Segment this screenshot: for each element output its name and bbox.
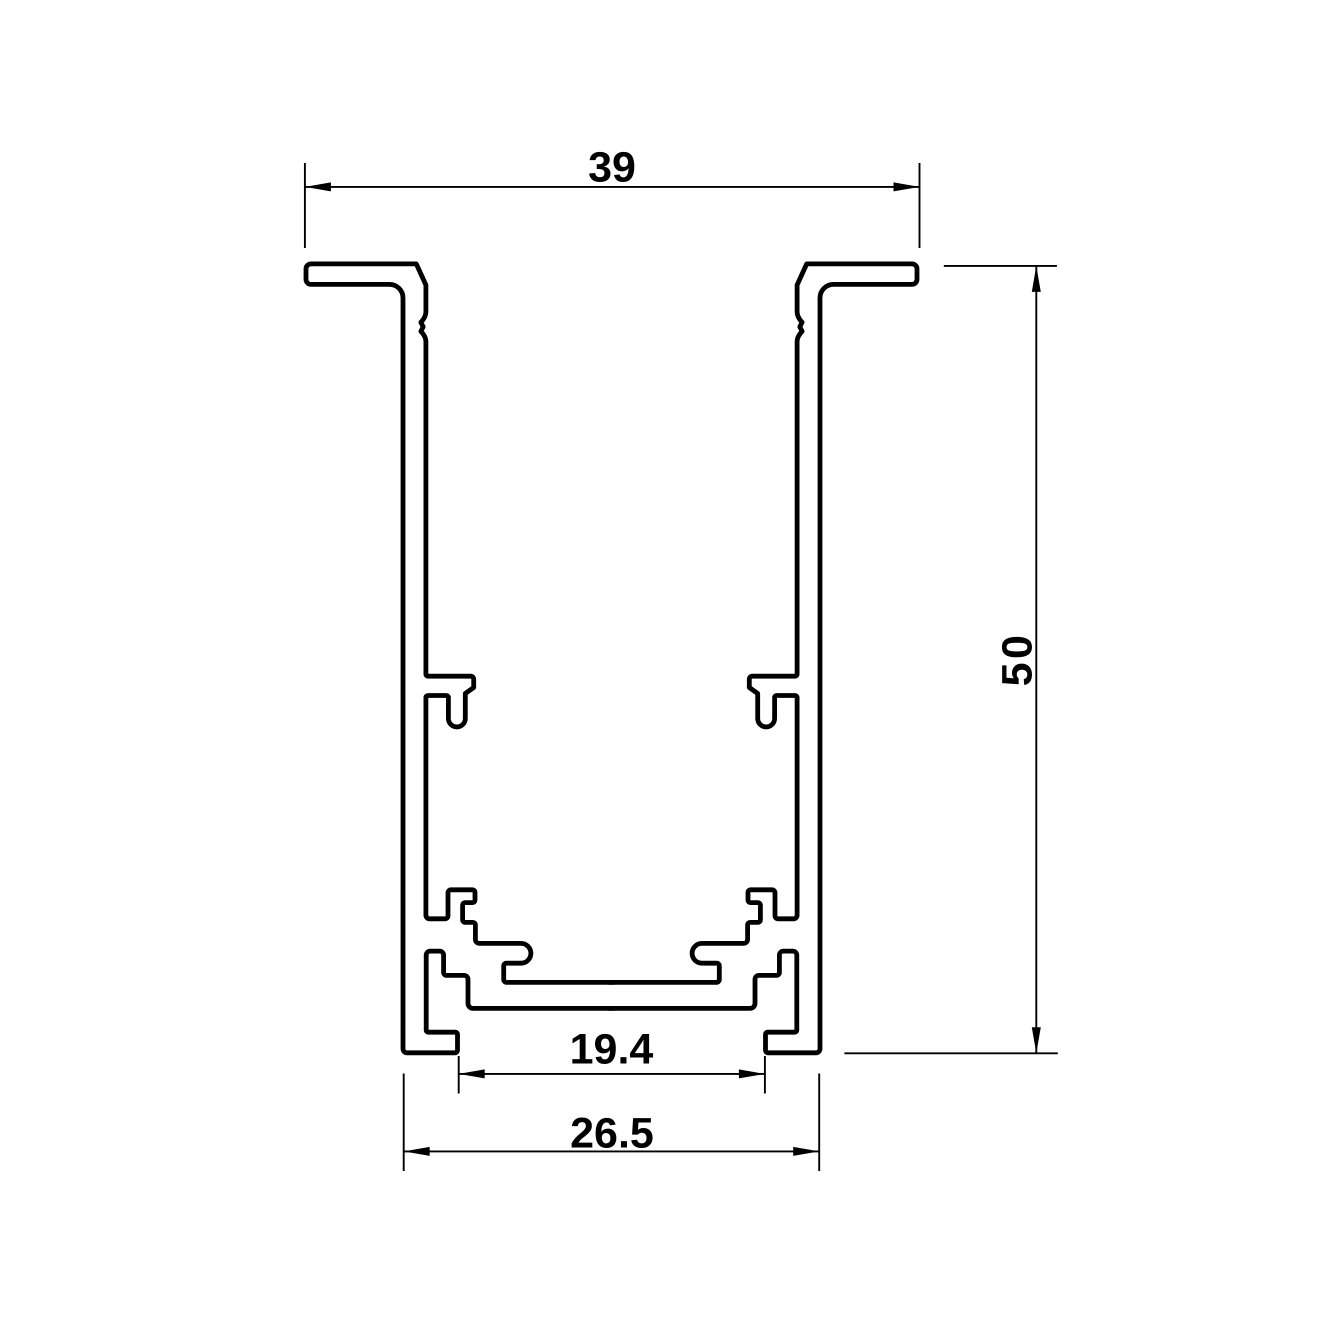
- svg-text:26.5: 26.5: [570, 1109, 654, 1157]
- svg-text:50: 50: [994, 632, 1042, 687]
- svg-text:19.4: 19.4: [570, 1026, 654, 1074]
- svg-text:39: 39: [588, 144, 636, 192]
